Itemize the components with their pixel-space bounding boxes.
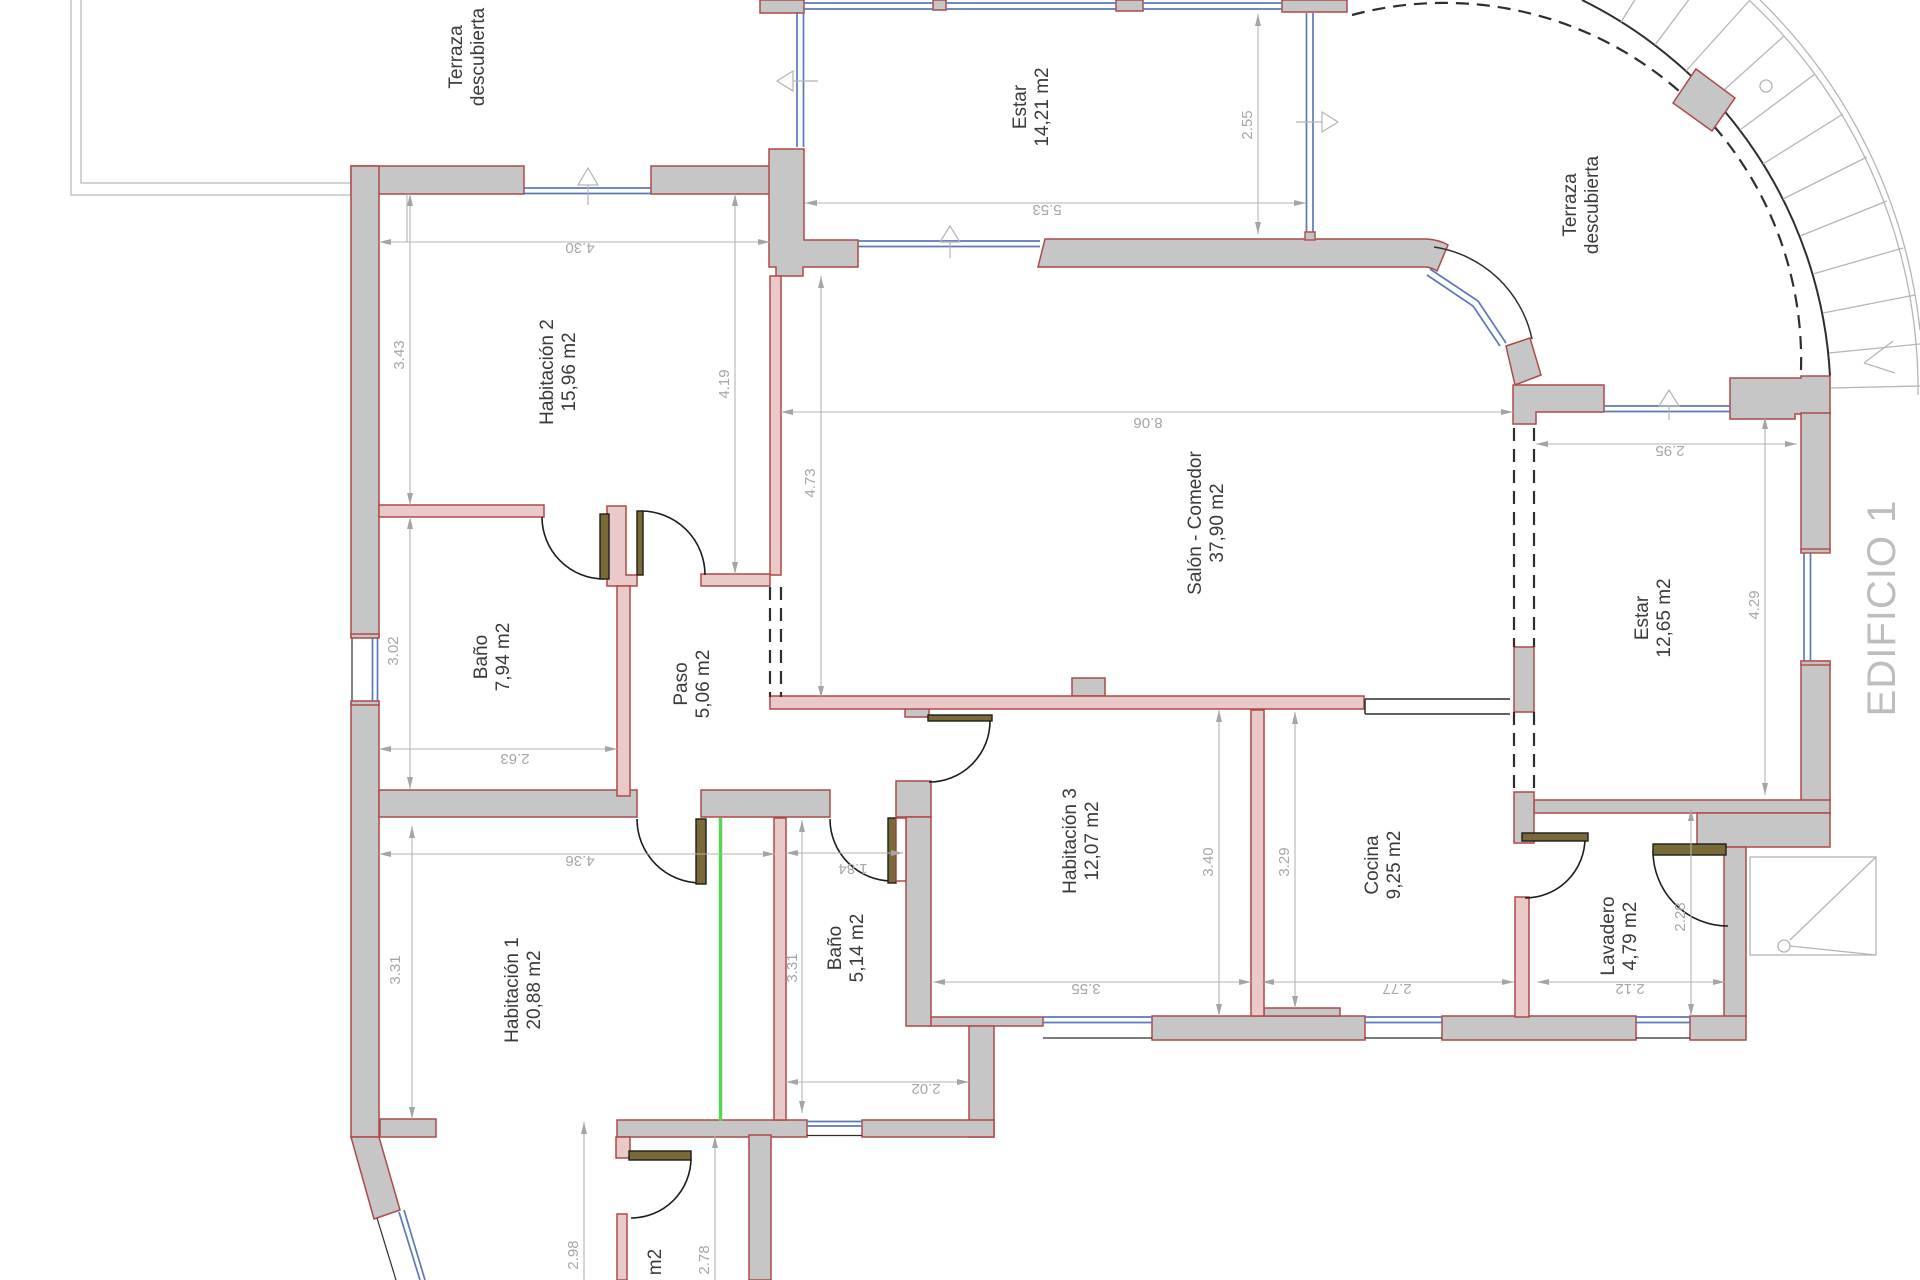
svg-text:4.29: 4.29 [1746, 590, 1763, 619]
svg-text:Baño: Baño [471, 635, 492, 679]
svg-text:descubierta: descubierta [1582, 155, 1603, 254]
svg-text:2.12: 2.12 [1615, 980, 1644, 997]
svg-text:3.29: 3.29 [1276, 847, 1293, 876]
svg-text:9,25 m2: 9,25 m2 [1384, 831, 1405, 900]
svg-text:3.02: 3.02 [385, 636, 402, 665]
svg-text:2.77: 2.77 [1382, 980, 1411, 997]
svg-text:12,65 m2: 12,65 m2 [1654, 578, 1675, 657]
svg-text:4.73: 4.73 [802, 468, 819, 497]
svg-text:2.98: 2.98 [565, 1240, 582, 1269]
svg-text:Baño: Baño [825, 926, 846, 970]
svg-text:2.02: 2.02 [911, 1080, 940, 1097]
svg-text:m2: m2 [645, 1249, 666, 1275]
svg-text:Habitación 1: Habitación 1 [502, 937, 523, 1043]
svg-text:5.53: 5.53 [1032, 201, 1061, 218]
svg-text:2.55: 2.55 [1239, 110, 1256, 139]
svg-text:descubierta: descubierta [468, 7, 489, 106]
svg-text:3.31: 3.31 [387, 955, 404, 984]
svg-text:3.31: 3.31 [784, 953, 801, 982]
svg-text:1.84: 1.84 [838, 860, 867, 877]
svg-text:Lavadero: Lavadero [1598, 896, 1619, 975]
svg-text:5,06 m2: 5,06 m2 [693, 650, 714, 719]
svg-text:Terraza: Terraza [1560, 173, 1581, 237]
svg-text:2.63: 2.63 [500, 750, 529, 767]
svg-text:3.55: 3.55 [1071, 980, 1100, 997]
svg-text:3.40: 3.40 [1200, 847, 1217, 876]
svg-text:4.30: 4.30 [565, 239, 594, 256]
svg-text:Habitación 2: Habitación 2 [537, 319, 558, 425]
svg-text:2.78: 2.78 [696, 1245, 713, 1274]
svg-text:Terraza: Terraza [446, 25, 467, 89]
svg-text:Salón - Comedor: Salón - Comedor [1185, 451, 1206, 595]
svg-text:2.28: 2.28 [1672, 902, 1689, 931]
svg-text:8.06: 8.06 [1133, 414, 1162, 431]
svg-text:7,94 m2: 7,94 m2 [493, 623, 514, 692]
svg-text:2.95: 2.95 [1655, 442, 1684, 459]
svg-text:4,79 m2: 4,79 m2 [1620, 902, 1641, 971]
svg-text:20,88 m2: 20,88 m2 [524, 950, 545, 1029]
svg-text:3.43: 3.43 [391, 340, 408, 369]
svg-text:4.36: 4.36 [565, 852, 594, 869]
svg-text:Habitación 3: Habitación 3 [1060, 788, 1081, 894]
svg-text:14,21 m2: 14,21 m2 [1032, 67, 1053, 146]
svg-text:4.19: 4.19 [716, 369, 733, 398]
svg-text:37,90 m2: 37,90 m2 [1207, 483, 1228, 562]
svg-text:15,96 m2: 15,96 m2 [559, 332, 580, 411]
svg-text:Paso: Paso [671, 662, 692, 705]
svg-text:Estar: Estar [1010, 84, 1031, 129]
svg-text:Cocina: Cocina [1362, 835, 1383, 895]
svg-text:12,07 m2: 12,07 m2 [1082, 801, 1103, 880]
svg-text:EDIFICIO 1: EDIFICIO 1 [1860, 500, 1904, 717]
svg-text:5,14 m2: 5,14 m2 [847, 914, 868, 983]
svg-text:Estar: Estar [1632, 595, 1653, 640]
